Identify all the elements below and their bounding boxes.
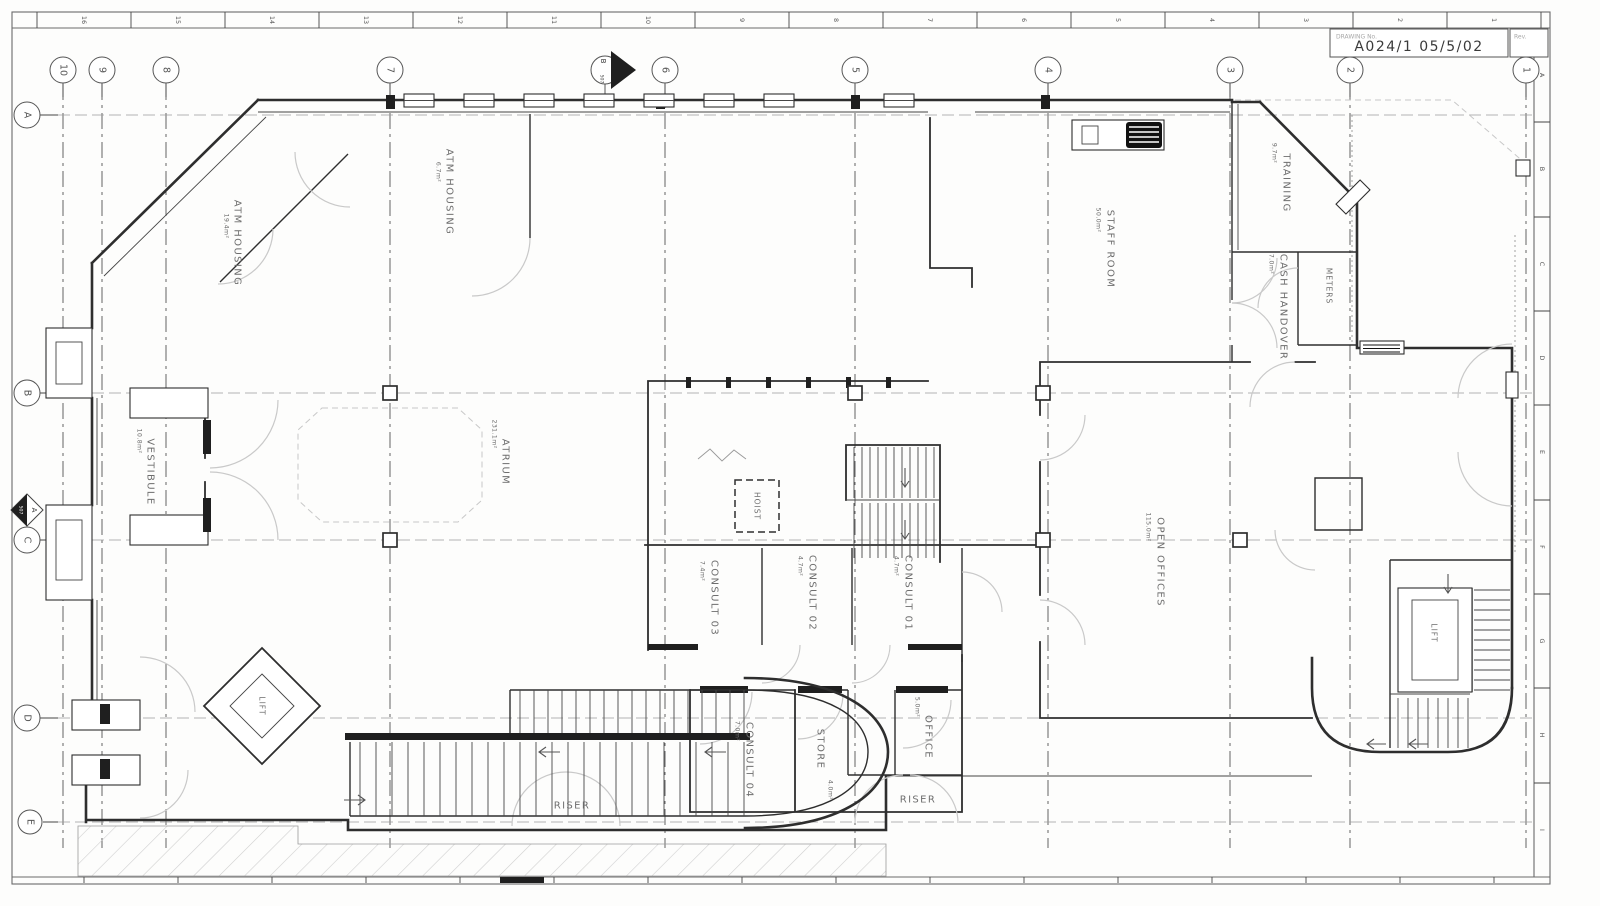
ruler-cell: H	[1538, 733, 1546, 738]
room-label-riser-west: RISER	[554, 801, 591, 812]
room-label-office: OFFICE	[923, 715, 934, 759]
room-label-consult-02: CONSULT 02	[807, 555, 818, 631]
ruler-cell: 8	[832, 18, 840, 22]
room-label-consult-01: CONSULT 01	[903, 555, 914, 631]
east-stair-lift	[1390, 588, 1510, 748]
grid-bubble: A	[22, 112, 33, 119]
ruler-cell: 3	[1302, 18, 1310, 22]
room-area: 7.0m²	[1268, 254, 1275, 274]
section-sheet-ref: 507	[599, 75, 605, 84]
room-label-consult-03: CONSULT 03	[709, 560, 720, 636]
room-label-lift-west: LIFT	[258, 696, 267, 715]
grid-bubble: 6	[660, 67, 671, 73]
ruler-cell: 16	[80, 16, 88, 24]
section-label: B	[599, 59, 607, 64]
room-area: 19.4m²	[223, 214, 230, 239]
ruler-cell: 9	[738, 18, 746, 22]
sheet-frame	[12, 12, 1550, 884]
ruler-cell: 2	[1396, 18, 1404, 22]
room-label-meters: METERS	[1325, 268, 1334, 305]
ruler-cell: 6	[1020, 18, 1028, 22]
ruler-cell: G	[1538, 639, 1546, 644]
grid-bubble: 1	[1521, 67, 1532, 73]
door-swings	[140, 152, 1512, 826]
grid-bubble: 8	[161, 67, 172, 73]
grid-bubble: 4	[1043, 67, 1054, 73]
ruler-cell: B	[1538, 167, 1546, 171]
room-area: 4.7m²	[893, 556, 900, 576]
grid-bubble: 10	[58, 64, 69, 76]
grid-column-bubbles: 10 9 8 7 6 5 4 3 2 1	[50, 57, 1539, 97]
room-label-open-offices: OPEN OFFICES	[1155, 517, 1166, 607]
ruler-cell: D	[1538, 356, 1546, 361]
room-label-cash-handover: CASH HANDOVER	[1278, 254, 1289, 360]
room-area: 231.1m²	[491, 419, 498, 448]
windows	[404, 94, 1530, 398]
section-label: A	[30, 508, 38, 513]
drawing-number: A024/1 05/5/02	[1354, 39, 1483, 55]
section-sheet-ref: 507	[18, 506, 24, 515]
room-area: 6.7m²	[435, 162, 442, 182]
section-marker-a: 507 A	[11, 494, 43, 526]
break-line	[698, 449, 746, 461]
central-stair	[846, 447, 940, 558]
ruler-cell: I	[1538, 829, 1546, 831]
grid-bubble: C	[22, 537, 33, 544]
title-block: DRAWING No. A024/1 05/5/02 Rev.	[1330, 29, 1548, 57]
room-label-hoist: HOIST	[753, 492, 762, 520]
room-area: 115.0m²	[1145, 512, 1152, 541]
ruler-cell: F	[1538, 545, 1546, 549]
ruler-cell: 5	[1114, 18, 1122, 22]
ruler-cell: C	[1538, 262, 1546, 267]
grid-bubble: B	[22, 390, 33, 397]
room-label-lift-east: LIFT	[1430, 623, 1439, 642]
ruler-cell: E	[1538, 450, 1546, 454]
room-label-riser-east: RISER	[900, 795, 937, 806]
ruler-cell: 10	[644, 16, 652, 24]
room-area: 7.0m²	[734, 721, 741, 741]
ruler-cell: 14	[268, 16, 276, 24]
room-label-atm-housing-east: ATM HOUSING	[444, 149, 455, 236]
ruler-cell: 13	[362, 16, 370, 24]
structural-columns	[383, 386, 1247, 547]
ruler-cell: 15	[174, 16, 182, 24]
grid-bubble: 2	[1345, 67, 1356, 73]
ruler-cell: 7	[926, 18, 934, 22]
ruler-cell: 4	[1208, 18, 1216, 22]
room-area: 9.7m²	[1271, 143, 1278, 163]
ruler-cell: 12	[456, 16, 464, 24]
grid-bubble: E	[25, 819, 36, 825]
grid-bubble: D	[22, 714, 33, 721]
room-area: 4.0m²	[827, 780, 834, 800]
hatched-pavement	[78, 826, 886, 876]
room-label-training: TRAINING	[1281, 152, 1292, 212]
floor-plan-drawing: 16 15 14 13 12 11 10 9 8 7 6 5 4 3 2 1 A…	[0, 0, 1600, 906]
ruler-cell: A	[1538, 73, 1546, 78]
room-label-consult-04: CONSULT 04	[744, 722, 755, 798]
room-labels: ATM HOUSING 19.4m² ATM HOUSING 6.7m² TRA…	[136, 143, 1439, 812]
equipment-unit	[1072, 120, 1164, 150]
grid-row-bubbles: A B C D E	[14, 102, 58, 834]
room-label-vestibule: VESTIBULE	[145, 438, 156, 505]
room-label-store: STORE	[815, 729, 826, 770]
room-area: 10.8m²	[136, 429, 143, 454]
room-area: 50.0m²	[1095, 208, 1102, 233]
floor-plan-page: 16 15 14 13 12 11 10 9 8 7 6 5 4 3 2 1 A…	[0, 0, 1600, 906]
room-area: 5.0m²	[914, 697, 921, 717]
grid-bubble: 9	[97, 67, 108, 73]
grid-bubble: 7	[385, 67, 396, 73]
grid-bubble: 3	[1225, 67, 1236, 73]
room-area: 4.7m²	[797, 556, 804, 576]
section-marker-b: B 507	[591, 51, 636, 100]
stair-direction-arrows	[344, 468, 1452, 805]
revision-caption: Rev.	[1514, 34, 1527, 41]
grid-bubble: 5	[850, 67, 861, 73]
room-label-staff-room: STAFF ROOM	[1105, 210, 1116, 289]
room-area: 7.4m²	[699, 561, 706, 581]
ruler-cell: 11	[550, 16, 558, 24]
room-label-atrium: ATRIUM	[500, 439, 511, 485]
ruler-cell: 1	[1490, 18, 1498, 22]
right-ruler: A B C D E F G H I	[1538, 73, 1546, 831]
room-label-atm-housing-west: ATM HOUSING	[232, 200, 243, 287]
